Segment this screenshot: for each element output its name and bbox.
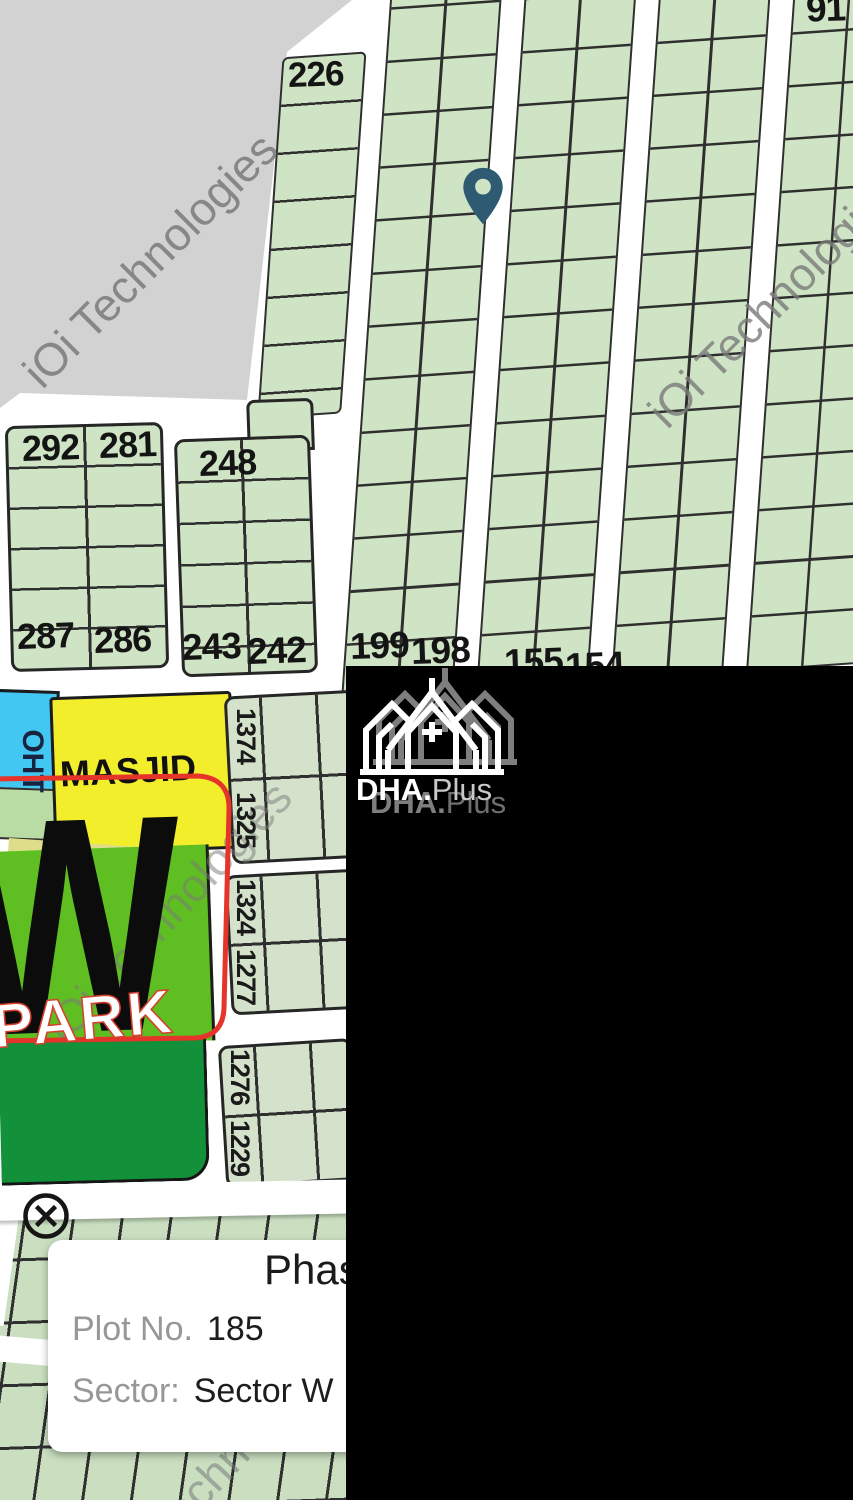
sector-label-text: Sector:	[72, 1372, 180, 1410]
plot-number-label: 226	[287, 56, 344, 93]
dha-plus-logo: DHA.Plus DHA.Plus	[352, 670, 542, 830]
plot-number-label: 1325	[232, 770, 260, 870]
logo-text-bold: DHA	[356, 772, 423, 807]
logo-house-icon	[352, 670, 512, 780]
plot-grid-columns	[340, 0, 853, 710]
plot-number-label: 248	[198, 444, 256, 482]
plot-number-value: 185	[207, 1310, 264, 1348]
plot-column[interactable]	[611, 0, 774, 681]
plot-number-label: 286	[93, 621, 151, 659]
plot-number-label-text: Plot No.	[72, 1310, 193, 1348]
plot-number-label: 243	[181, 627, 241, 666]
logo-text-sep: .	[423, 772, 432, 807]
plot-number-label: 287	[16, 617, 74, 655]
logo-text-light: Plus	[432, 772, 492, 807]
plot-number-label: 91	[805, 0, 845, 28]
plot-number-row: Plot No.185	[72, 1310, 264, 1349]
sector-row: Sector:Sector W	[72, 1372, 334, 1411]
plot-column[interactable]	[476, 0, 639, 691]
plot-number-label: 242	[246, 631, 306, 670]
plot-number-label: 1277	[232, 927, 260, 1027]
close-button[interactable]	[21, 1191, 71, 1241]
plot-number-label: 292	[21, 429, 79, 467]
plot-number-label: 281	[98, 426, 156, 464]
sector-value: Sector W	[194, 1372, 334, 1410]
plot-column[interactable]	[341, 0, 504, 700]
location-pin-icon[interactable]	[460, 166, 506, 226]
map-screen: 226 91 292 281 287 286 248 243 242 199 1…	[0, 0, 853, 1500]
logo-wordmark: DHA.Plus	[356, 772, 492, 808]
